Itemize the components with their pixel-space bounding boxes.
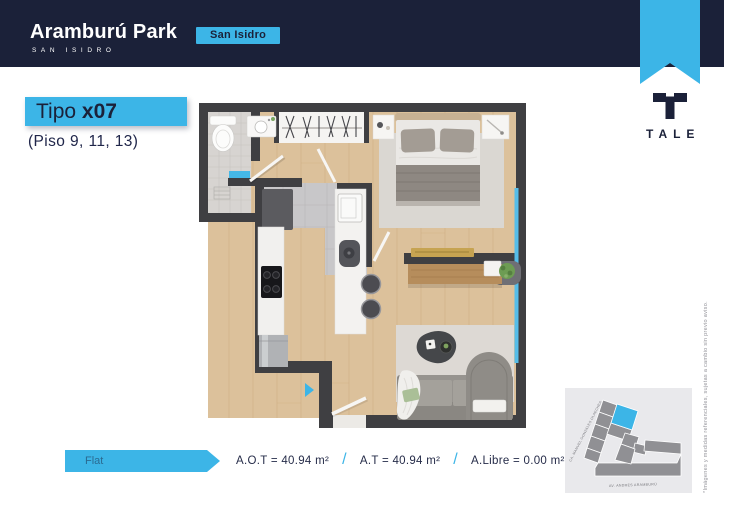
slash-divider: / [453,451,458,469]
island-faucet [339,240,360,267]
area-libre: A.Libre = 0.00 m² [471,455,565,467]
bathroom-sink [247,116,276,137]
unit-type-prefix: Tipo [36,100,82,123]
toilet [210,116,236,152]
washer [259,335,288,367]
brochure-page: Aramburú Park SAN ISIDRO San Isidro TALE… [0,0,730,513]
unit-title-box: Tipo x07 [25,97,187,126]
flat-banner: Flat [65,450,220,472]
shower-shelf [229,171,250,178]
location-map: CA. MANUEL GONZÁLES OLAECHEA AV. ANDRÉS … [565,388,692,493]
area-aot: A.O.T = 40.94 m² [236,455,329,467]
brand-subtitle: SAN ISIDRO [32,47,177,54]
tale-logo: TALE [640,93,700,141]
nightstand-right [482,115,509,139]
tale-logo-text: TALE [640,127,700,141]
brand-title: Aramburú Park [30,21,177,44]
nightstand-left [373,115,394,139]
location-badge: San Isidro [196,27,280,44]
disclaimer-text: *Imágenes y medidas referenciales, sujet… [703,293,709,493]
lounge-chair [466,352,512,420]
unit-type-code: x07 [82,100,117,123]
area-at: A.T = 40.94 m² [360,455,440,467]
closet-hangers [279,112,364,143]
bed [395,113,481,206]
slash-divider: / [342,451,347,469]
bookmark-ribbon-icon [640,0,700,84]
floor-plan [199,103,526,430]
unit-floors-note: (Piso 9, 11, 13) [28,133,138,151]
fridge [262,189,293,230]
flat-label: Flat [85,455,103,467]
entry-threshold [333,415,366,428]
brand-logo: Aramburú Park SAN ISIDRO [30,21,177,54]
cooktop [261,266,282,298]
tale-logo-icon [653,93,687,119]
area-summary: A.O.T = 40.94 m² / A.T = 40.94 m² / A.Li… [236,453,565,469]
plant [499,263,515,279]
